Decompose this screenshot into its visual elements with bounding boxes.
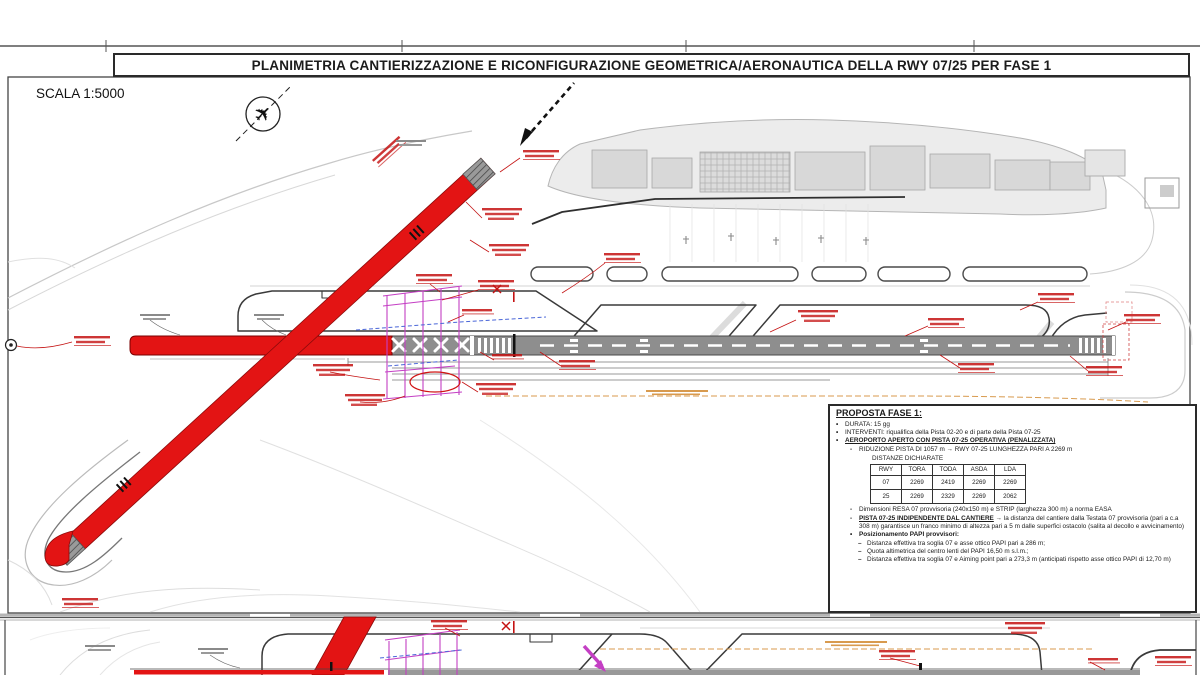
sheet-title-bar: PLANIMETRIA CANTIERIZZAZIONE E RICONFIGU… [113, 53, 1190, 77]
sheet2-runway-02-20 [312, 617, 376, 675]
pista-indipendente-line: - PISTA 07-25 INDIPENDENTE DAL CANTIERE … [850, 515, 1190, 532]
sheet2-magenta-arrow [584, 646, 606, 672]
table-row: 252269 23292269 2062 [871, 490, 1026, 504]
dimensioni-line: - Dimensioni RESA 07 provvisoria (240x15… [850, 506, 1190, 514]
scale-label: SCALA 1:5000 [36, 86, 125, 101]
riduzione-line: - RIDUZIONE PISTA DI 1057 m → RWY 07-25 … [850, 446, 1190, 454]
table-row: 072269 24192269 2269 [871, 476, 1026, 490]
distanze-heading: DISTANZE DICHIARATE [872, 455, 1190, 463]
sheet2-runway-gray [388, 670, 1140, 675]
sheet2-runway-red [134, 670, 384, 675]
table-header-row: RWYTORA TODAASDA LDA [871, 465, 1026, 476]
page-title: PLANIMETRIA CANTIERIZZAZIONE E RICONFIGU… [252, 58, 1052, 73]
proposta-fase-1-box: PROPOSTA FASE 1: • DURATA: 15 gg • INTER… [828, 404, 1197, 613]
proposta-heading: PROPOSTA FASE 1: [836, 408, 1190, 420]
sheet2-drawing [30, 617, 1196, 675]
runway-closed-red-section [130, 336, 392, 355]
papi-item: – Distanza effettiva tra soglia 07 e Aim… [858, 556, 1190, 564]
bullet-durata: • DURATA: 15 gg [836, 421, 1190, 429]
sheet2-construction-hatch [385, 630, 460, 675]
bullet-interventi: • INTERVENTI: riqualifica della Pista 02… [836, 429, 1190, 437]
papi-item: – Distanza effettiva tra soglia 07 e ass… [858, 540, 1190, 548]
declared-distances-table: RWYTORA TODAASDA LDA 072269 24192269 226… [870, 464, 1026, 504]
papi-heading-line: • Posizionamento PAPI provvisori: [850, 531, 1190, 539]
papi-item: – Quota altimetrica del centro lenti del… [858, 548, 1190, 556]
drawing-sheet: ✈ [0, 0, 1200, 675]
bullet-aeroporto: • AEROPORTO APERTO CON PISTA 07-25 OPERA… [836, 437, 1190, 445]
papi-position-tick [513, 334, 516, 357]
